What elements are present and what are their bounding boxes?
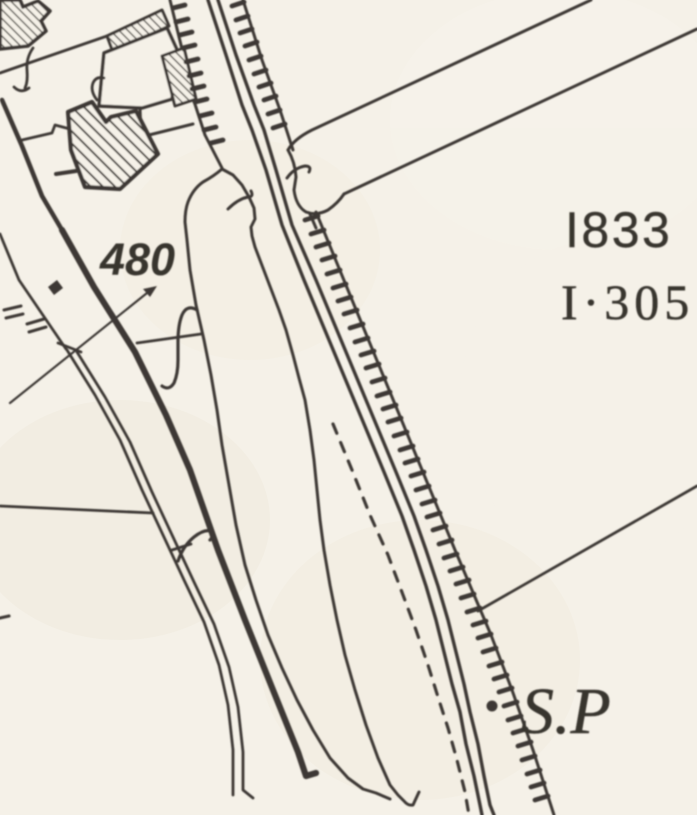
svg-text:I·305: I·305: [561, 274, 694, 330]
svg-text:480: 480: [99, 234, 175, 285]
svg-text:I833: I833: [565, 202, 672, 258]
svg-text:S.P: S.P: [521, 675, 611, 748]
